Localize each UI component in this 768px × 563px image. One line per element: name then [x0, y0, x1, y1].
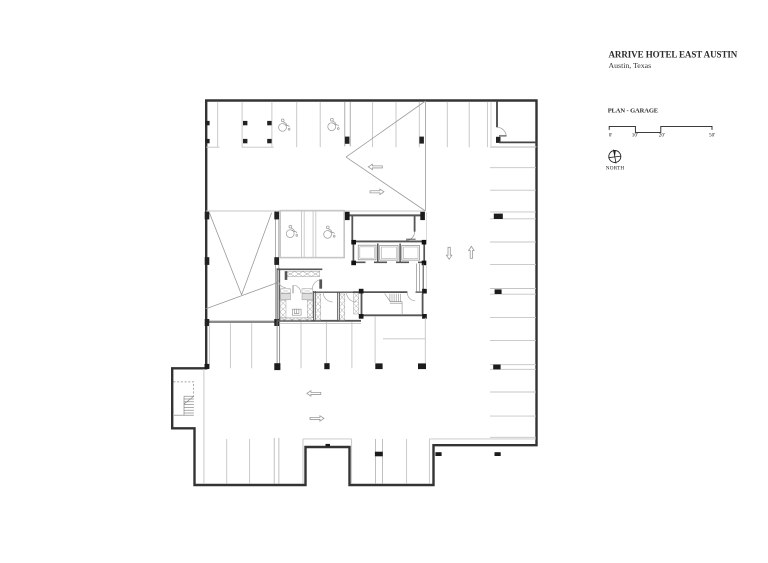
svg-text:NORTH: NORTH — [606, 166, 625, 172]
svg-text:50': 50' — [709, 133, 715, 139]
svg-text:20': 20' — [659, 133, 665, 139]
svg-text:PLAN - GARAGE: PLAN - GARAGE — [608, 107, 658, 114]
svg-text:ARRIVE HOTEL EAST AUSTIN: ARRIVE HOTEL EAST AUSTIN — [609, 50, 738, 60]
svg-text:Austin, Texas: Austin, Texas — [609, 61, 652, 70]
svg-text:10': 10' — [632, 133, 638, 139]
svg-text:0': 0' — [609, 133, 613, 139]
